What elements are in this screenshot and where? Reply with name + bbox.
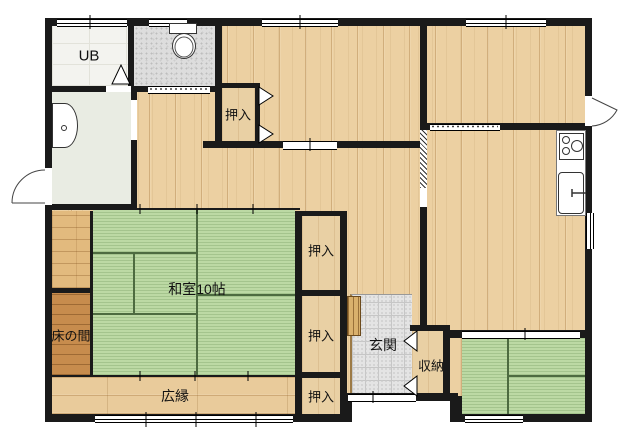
wall — [420, 207, 427, 327]
wall — [295, 211, 347, 216]
mat-line — [93, 313, 198, 315]
door-gap-washroom — [131, 100, 137, 140]
wall — [128, 18, 134, 92]
label-oshiire-upper: 押入 — [308, 241, 334, 260]
wash-basin — [52, 103, 78, 148]
kitchen-sink — [558, 172, 584, 214]
stove — [559, 133, 584, 160]
door-arc-washroom — [12, 170, 45, 203]
mat-line — [93, 252, 198, 254]
toilet-bowl — [172, 33, 196, 59]
label-washitsu: 和室10帖 — [168, 279, 226, 299]
wall — [420, 18, 427, 130]
label-oshiire-top: 押入 — [225, 105, 251, 124]
entrance-door — [348, 394, 416, 402]
exterior-notch — [352, 401, 450, 422]
floor-plan: UB 押入 押入 押入 押入 和室10帖 床の間 広縁 玄関 収納 — [0, 0, 640, 442]
door-gap-washroom-exterior — [45, 168, 52, 205]
window — [586, 213, 594, 249]
mat-line — [507, 375, 585, 377]
label-ub: UB — [79, 48, 100, 65]
partition-line — [90, 211, 93, 376]
door-arc-kitchen — [592, 98, 617, 126]
wall — [450, 396, 462, 422]
sliding-door-room — [283, 141, 337, 150]
window — [262, 19, 338, 27]
label-shuno: 収納 — [418, 356, 444, 375]
room-toilet — [134, 26, 215, 86]
wall — [52, 288, 92, 293]
label-oshiire-lower: 押入 — [308, 326, 334, 345]
label-genkan: 玄関 — [369, 335, 397, 355]
sliding-door-toilet — [148, 86, 210, 94]
wall — [218, 83, 260, 88]
window — [466, 19, 546, 27]
door-gap-ub — [106, 86, 131, 92]
accordion-door — [420, 130, 427, 188]
shoji-line — [52, 375, 297, 377]
mat-line — [133, 252, 135, 315]
window — [465, 415, 523, 423]
sliding-door-tatami-se — [462, 331, 580, 339]
label-tokonoma: 床の間 — [51, 326, 90, 345]
door-gap-kitchen-exterior — [585, 96, 592, 126]
window — [95, 415, 293, 423]
wall — [295, 211, 302, 420]
wall — [443, 330, 450, 400]
wall — [45, 18, 52, 422]
sliding-door-kitchen-top — [430, 124, 500, 131]
label-hiroen: 広縁 — [161, 386, 189, 406]
opening-hall-kitchen — [420, 188, 427, 207]
entrance-step — [347, 296, 361, 336]
wall — [302, 372, 340, 378]
label-oshiire-hiroen: 押入 — [308, 387, 334, 406]
wall — [340, 211, 347, 420]
window — [57, 19, 127, 27]
wall — [302, 290, 340, 296]
cabinet-alcove — [52, 211, 90, 288]
fusuma-line — [93, 208, 300, 210]
wall — [255, 83, 260, 141]
